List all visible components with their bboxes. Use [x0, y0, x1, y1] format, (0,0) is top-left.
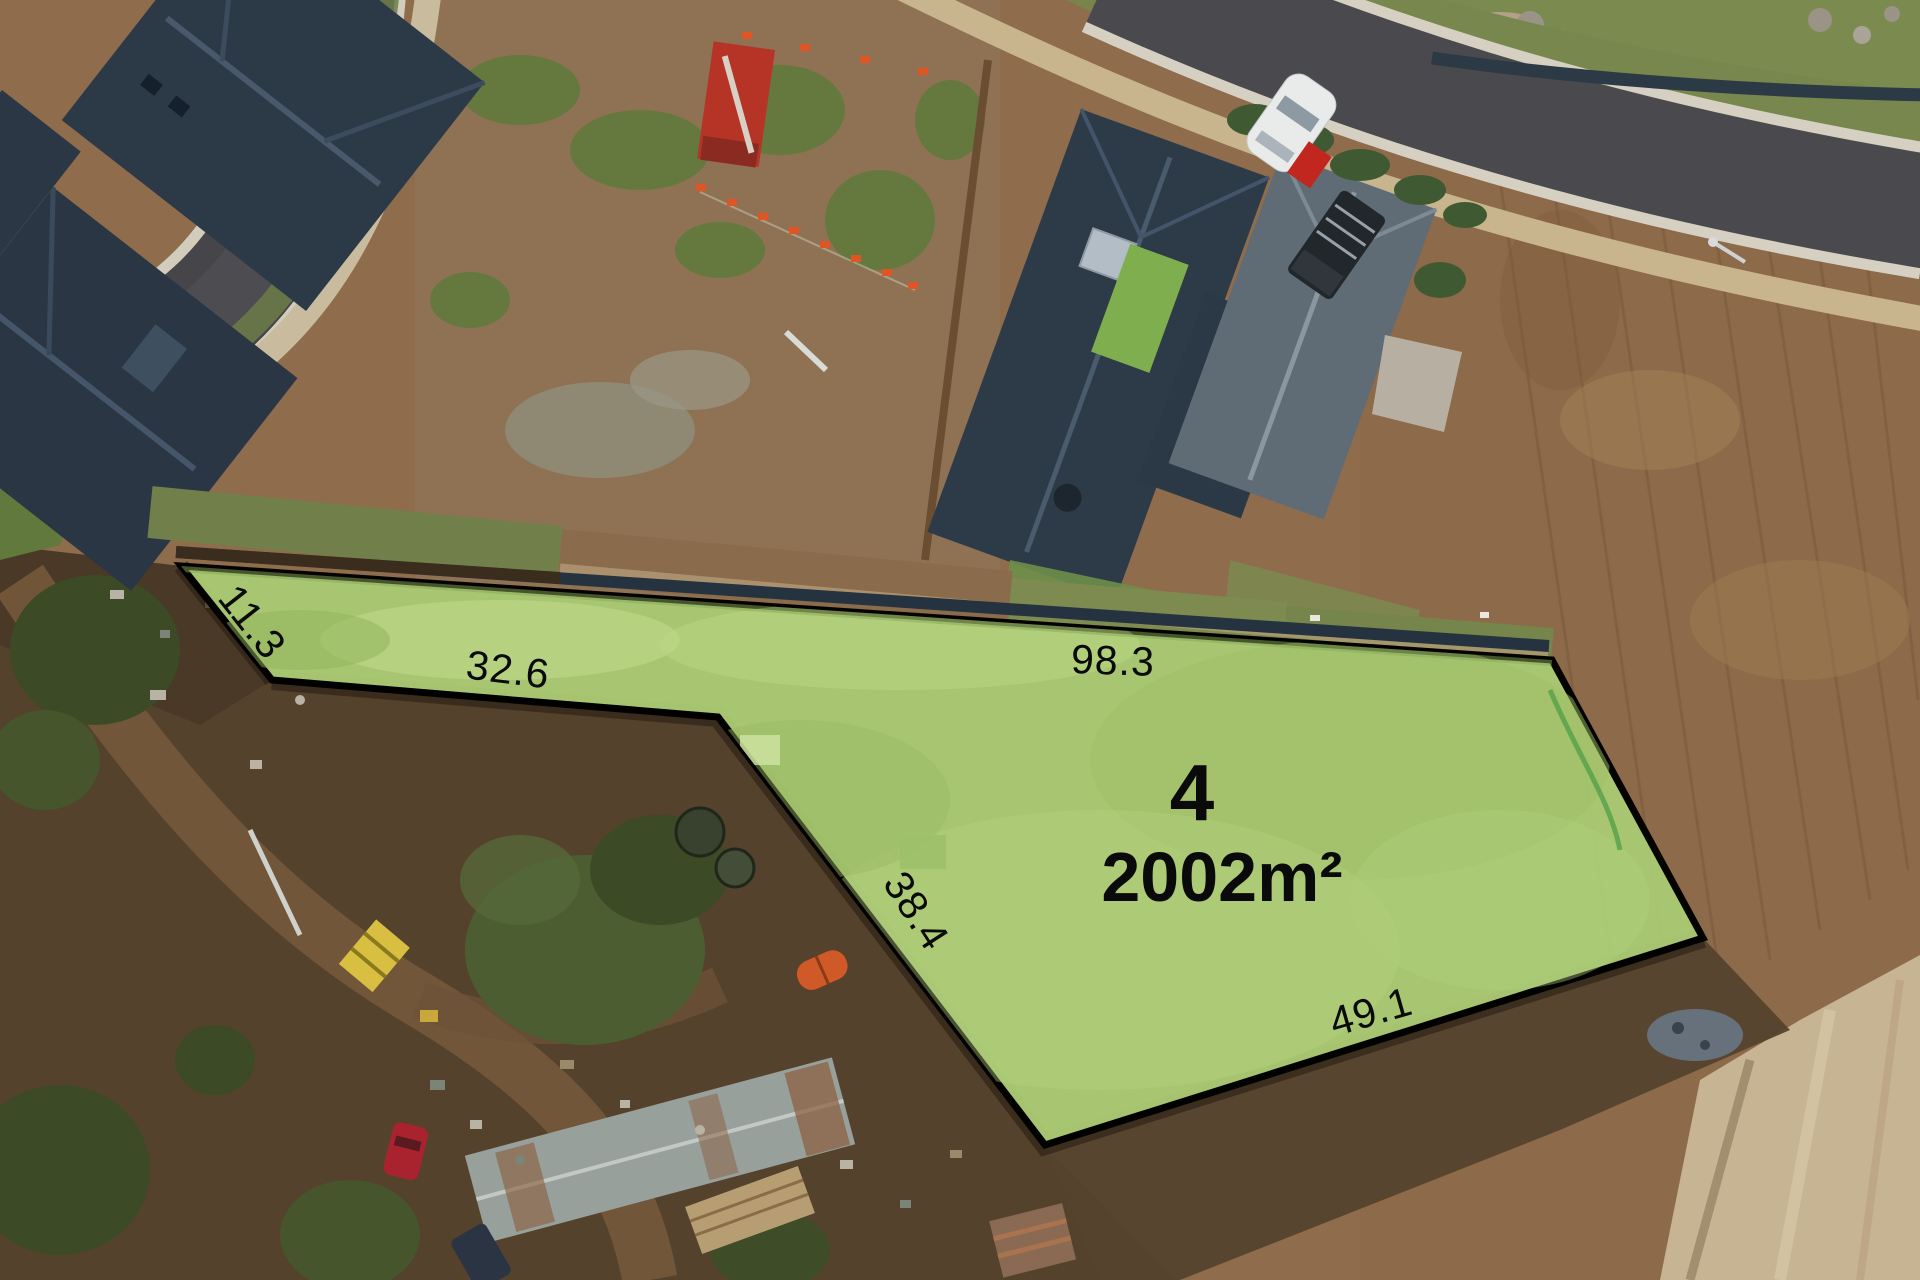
- boundary-length-label-2: 32.6: [464, 645, 552, 696]
- boundary-length-label-3: 98.3: [1070, 639, 1155, 683]
- round-tank: [676, 808, 724, 856]
- round-tank-small: [716, 849, 754, 887]
- lot-area-label: 2002m²: [1101, 842, 1342, 912]
- rubble-pile: [1647, 1009, 1743, 1061]
- aerial-lot-photo: 11.3 32.6 98.3 38.4 49.1 4 2002m²: [0, 0, 1920, 1280]
- lot-number-label: 4: [1170, 753, 1215, 833]
